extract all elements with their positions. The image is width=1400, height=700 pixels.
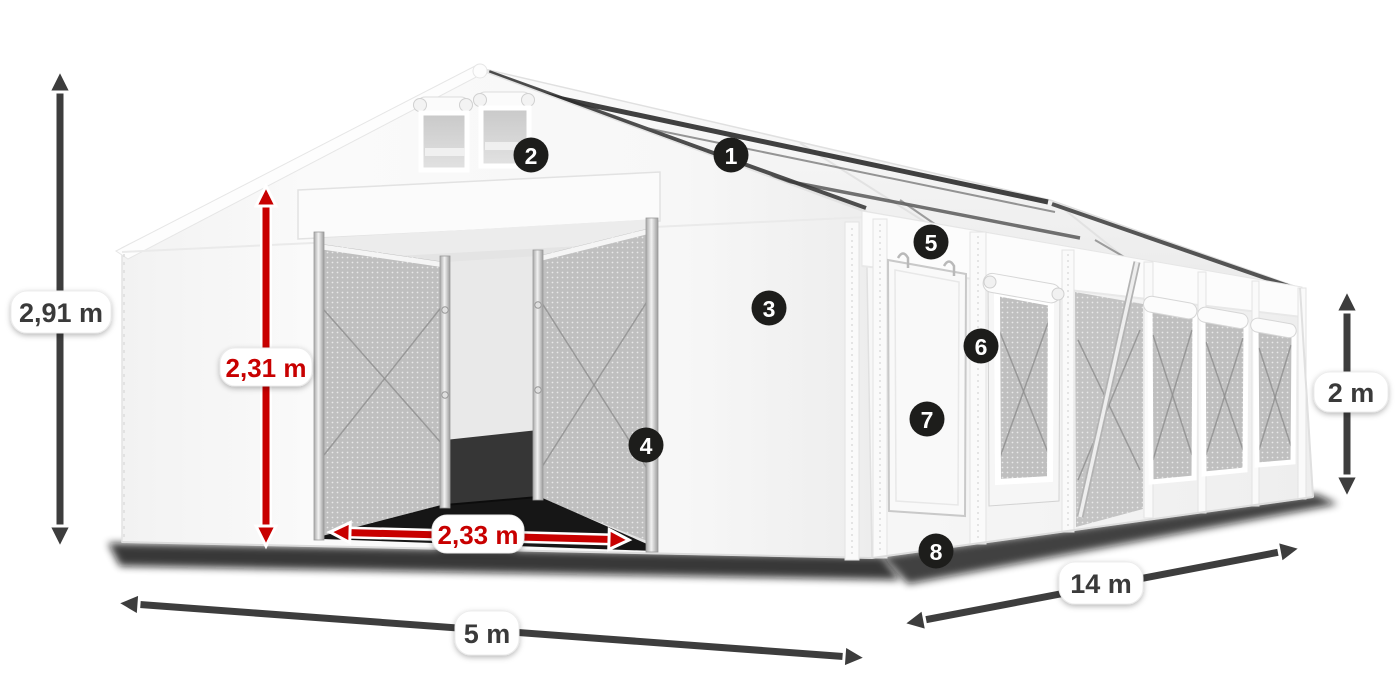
total-height-value: 2,91 m	[19, 298, 103, 328]
arrow-head	[116, 592, 140, 616]
callout-number: 3	[763, 296, 776, 322]
window-pane	[421, 113, 467, 170]
side-door-panel	[888, 260, 966, 516]
mesh-panel-left	[322, 244, 445, 536]
dimension-label-entrance-width: 2,33 m	[432, 515, 524, 553]
dimension-label-length: 14 m	[1059, 562, 1143, 604]
callout-number: 4	[640, 433, 653, 459]
interior-far-shadow	[445, 430, 538, 506]
window-cross-bar	[425, 148, 465, 156]
roll-end-cap	[1052, 288, 1064, 300]
side-window-front	[982, 272, 1064, 506]
callout-4: 4	[629, 428, 664, 463]
side-wall	[845, 211, 1313, 560]
callout-6: 6	[964, 329, 999, 364]
arrow-head	[843, 645, 867, 669]
arrow-head	[1336, 290, 1358, 312]
side-height-value: 2 m	[1328, 378, 1375, 408]
width-value: 5 m	[464, 619, 511, 649]
side-door	[888, 254, 966, 517]
roof-apex-cap	[473, 64, 487, 78]
callout-number: 5	[925, 230, 938, 256]
tent-dimension-diagram: 2,91 m 2,31 m 2,33 m 5 m 14 m 2 m 1 2 3 …	[0, 0, 1400, 700]
callout-5: 5	[914, 225, 949, 260]
callout-number: 2	[525, 143, 538, 169]
side-windows-rear	[1142, 295, 1297, 482]
gable-window-left	[414, 97, 473, 170]
pole-clamp	[442, 392, 448, 398]
callout-8: 8	[919, 534, 954, 569]
dimension-label-side-height: 2 m	[1314, 372, 1388, 412]
arrow-head	[49, 526, 71, 548]
side-window-mesh	[997, 293, 1051, 482]
roll-end-cap	[522, 94, 535, 107]
callout-2: 2	[514, 138, 549, 173]
pole-clamp	[442, 307, 448, 313]
callout-number: 7	[921, 407, 934, 433]
callout-number: 8	[930, 539, 943, 565]
tent-illustration-svg: 2,91 m 2,31 m 2,33 m 5 m 14 m 2 m 1 2 3 …	[0, 0, 1400, 700]
door-jamb-pole-right	[646, 218, 658, 552]
entrance-width-value: 2,33 m	[438, 520, 519, 550]
arrow-head	[49, 70, 71, 92]
dimension-label-entrance-height: 2,31 m	[220, 348, 312, 386]
arrow-head	[1277, 537, 1303, 563]
roll-end-cap	[414, 99, 427, 112]
callout-number: 6	[975, 334, 988, 360]
callout-number: 1	[725, 143, 738, 169]
door-jamb-pole-left	[314, 232, 324, 540]
callout-3: 3	[752, 291, 787, 326]
roll-end-cap	[474, 94, 487, 107]
door-frame-pole	[440, 256, 450, 508]
length-value: 14 m	[1070, 569, 1132, 599]
dimension-label-total-height: 2,91 m	[11, 291, 111, 333]
door-frame-pole	[533, 250, 543, 500]
arrow-head	[1336, 476, 1358, 498]
entrance-height-value: 2,31 m	[226, 353, 307, 383]
pole-clamp	[535, 302, 541, 308]
arrow-head	[901, 609, 927, 635]
roll-end-cap	[984, 276, 996, 288]
callout-7: 7	[910, 402, 945, 437]
callout-1: 1	[714, 138, 749, 173]
dimension-label-width: 5 m	[455, 611, 519, 655]
roll-end-cap	[460, 99, 473, 112]
front-door-opening	[322, 219, 656, 558]
pole-clamp	[535, 387, 541, 393]
